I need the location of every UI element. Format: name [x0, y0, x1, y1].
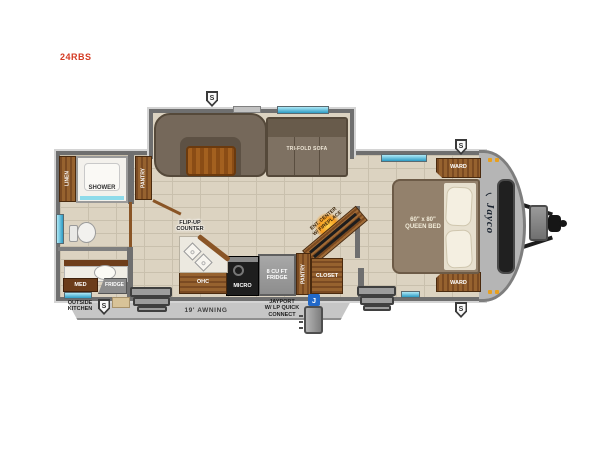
marker-light [495, 158, 499, 162]
med-cabinet: MED [63, 278, 98, 292]
steps-main [363, 305, 391, 311]
pillow [445, 229, 473, 268]
solar-badge-icon: S [206, 91, 218, 107]
bath-door-leaf [129, 202, 132, 248]
trifold-sofa: TRI-FOLD SOFA [266, 117, 348, 177]
pillow [445, 186, 473, 226]
burner-icon [233, 265, 244, 276]
marker-light [495, 290, 499, 294]
jayco-logo: Jayco [482, 203, 496, 273]
steps-rear [137, 306, 167, 312]
slide-window [277, 106, 329, 114]
bath-divider-wall [128, 152, 134, 204]
solar-badge-icon: S [455, 302, 467, 318]
drain [190, 249, 196, 255]
bath-rear-window [56, 214, 64, 244]
dinette-table [186, 146, 236, 176]
bed-size: 60" x 80" [398, 217, 448, 224]
fridge-label: 8 CU FT FRIDGE [260, 269, 294, 282]
kitchen-pantry: PANTRY [296, 253, 311, 295]
linen-label: LINEN [60, 157, 75, 201]
range-edge [227, 257, 258, 262]
marker-light [488, 290, 492, 294]
awning-label: 19' AWNING [168, 307, 244, 314]
jayport-label: JAYPORT W/ LP QUICK CONNECT [258, 299, 306, 318]
sofa-seam [319, 137, 320, 175]
vanity-wall [58, 247, 128, 251]
outside-kitchen-door [112, 297, 130, 308]
floorplan: 24RBS 19' AWNING Jayco LINEN SHOWER [0, 0, 600, 450]
drain [201, 260, 207, 266]
sofa-back [268, 119, 346, 137]
fridge-8cuft: 8 CU FT FRIDGE [258, 254, 296, 296]
steps-rear [133, 297, 170, 306]
sofa-label: TRI-FOLD SOFA [268, 147, 346, 153]
outside-fridge-label: FRIDGE [101, 283, 124, 289]
linen-cabinet: LINEN [59, 156, 76, 202]
ward-bottom: WARD [436, 272, 481, 292]
model-number: 24RBS [60, 52, 92, 62]
hitch-coupler [559, 220, 567, 227]
med-label: MED [74, 282, 86, 288]
flip-up-label: FLIP-UP COUNTER [168, 220, 212, 233]
range-micro: MICRO [226, 256, 259, 296]
bath-bottom-window [64, 292, 92, 299]
ohc-label: OHC [180, 279, 226, 285]
bed-type: QUEEN BED [398, 224, 448, 231]
bed-label: 60" x 80" QUEEN BED [398, 217, 448, 231]
hitch-box [529, 205, 548, 241]
bath-pantry: PANTRY [135, 156, 152, 200]
outside-kitchen-label: OUTSIDE KITCHEN [64, 300, 96, 313]
shower-water-edge [80, 196, 124, 200]
bath-pantry-label: PANTRY [136, 157, 151, 199]
closet: CLOSET [311, 258, 343, 294]
steps-rear [130, 287, 172, 297]
marker-light [488, 158, 492, 162]
bedroom-top-window [381, 154, 427, 162]
toilet-bowl [77, 222, 96, 243]
steps-main [360, 296, 394, 305]
closet-label: CLOSET [312, 259, 342, 293]
shower-label: SHOWER [78, 185, 126, 192]
shower: SHOWER [76, 156, 128, 203]
steps-main [357, 286, 396, 296]
sofa-seam [294, 137, 295, 175]
ward-top: WARD [436, 158, 481, 178]
jayport-badge-icon: J [308, 294, 320, 306]
cap-window [497, 179, 515, 274]
ward-top-label: WARD [437, 164, 480, 170]
jayport-device [304, 306, 323, 334]
queen-bed: 60" x 80" QUEEN BED [392, 179, 480, 274]
bedroom-bottom-window [401, 291, 420, 298]
kitchen-pantry-label: PANTRY [297, 254, 310, 294]
micro-label: MICRO [227, 283, 258, 289]
bed-pillows [444, 183, 476, 270]
ward-bottom-label: WARD [437, 280, 480, 286]
roof-vent [233, 106, 261, 113]
ohc-cabinet: OHC [179, 270, 227, 294]
